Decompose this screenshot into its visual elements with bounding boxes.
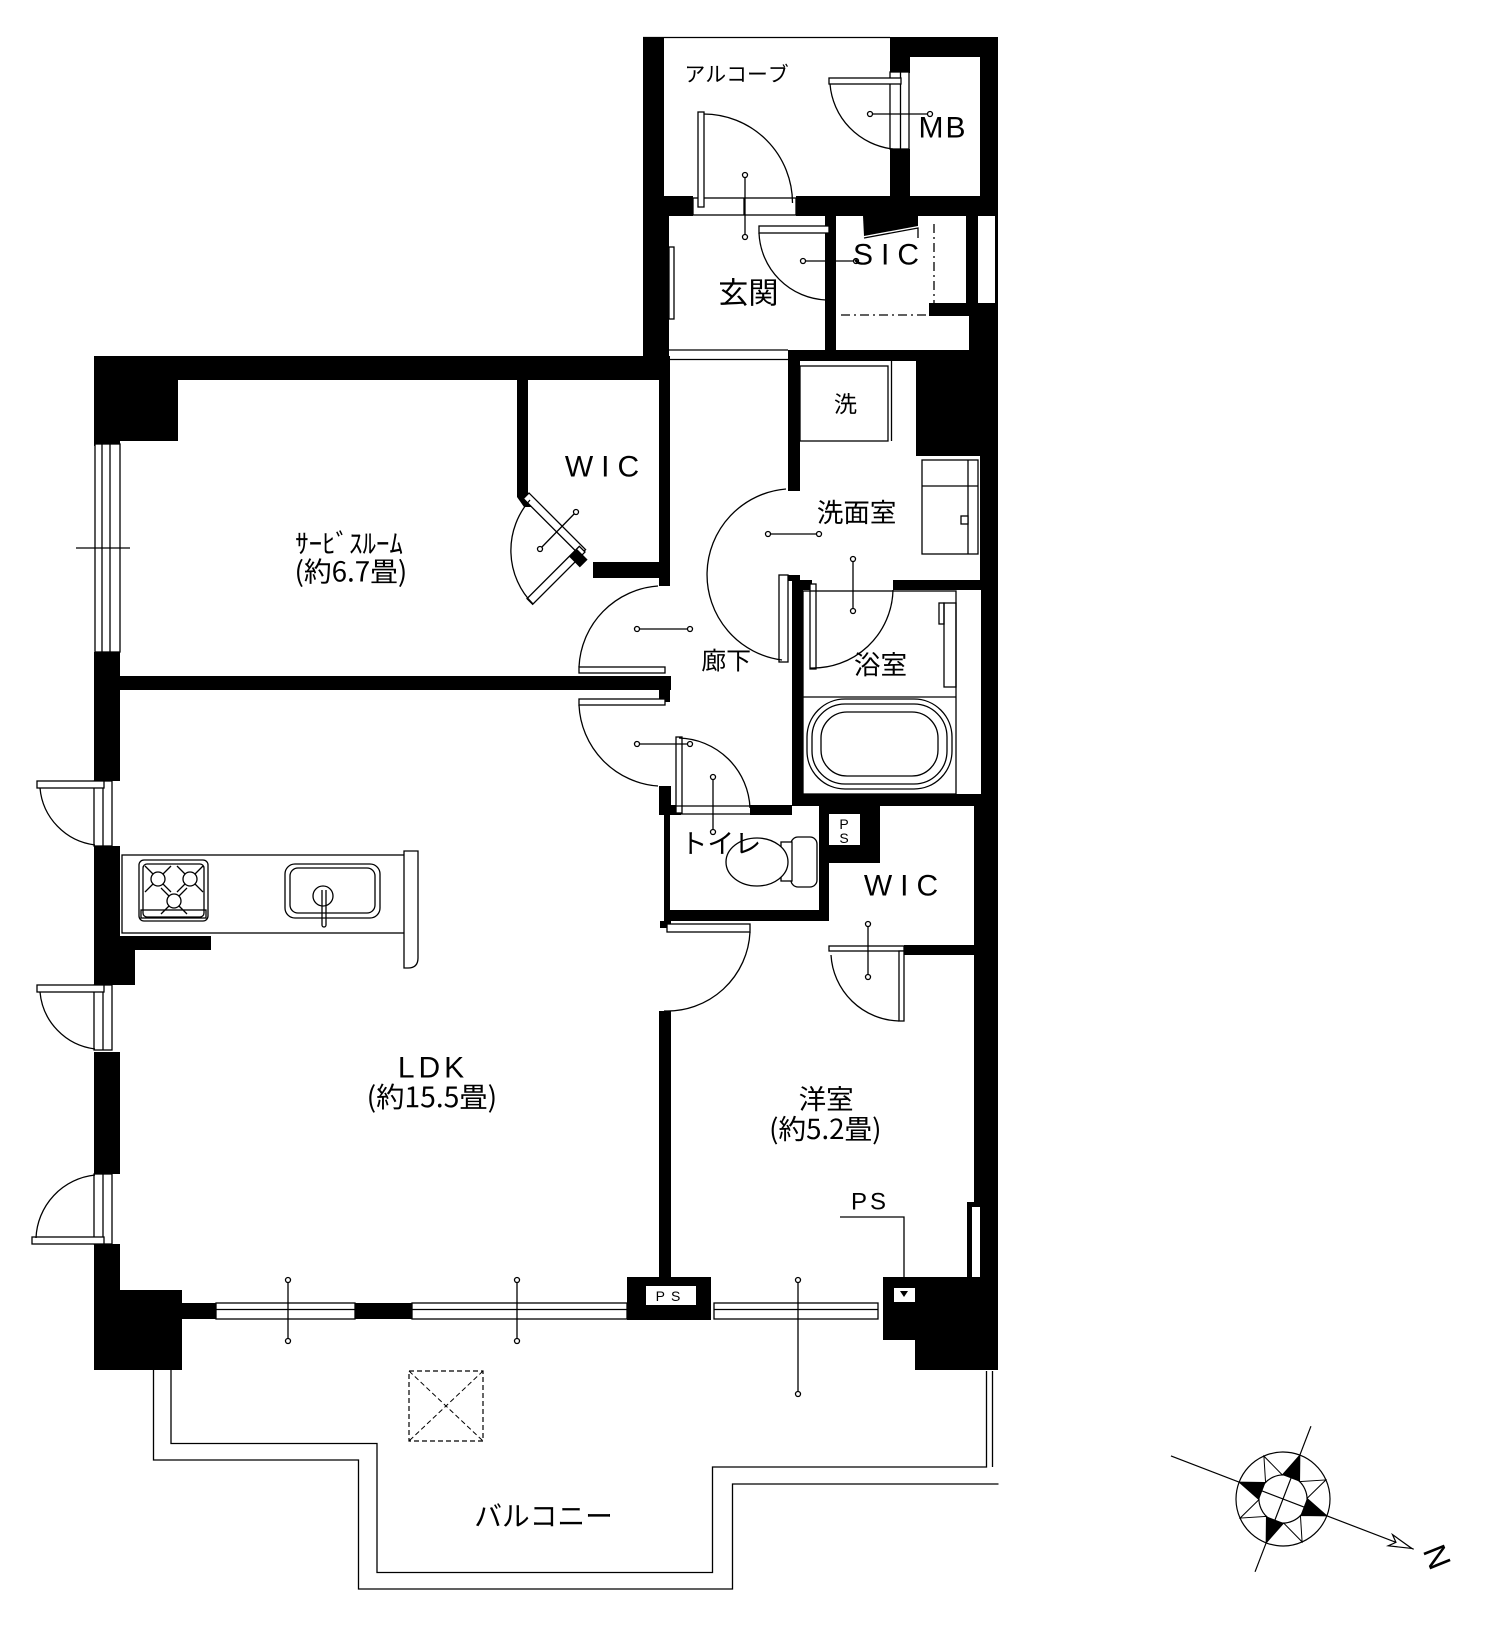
svg-text:PS: PS <box>656 1288 687 1304</box>
svg-text:MB: MB <box>919 112 968 145</box>
svg-text:WIC: WIC <box>864 870 946 903</box>
svg-text:SIC: SIC <box>853 239 927 272</box>
svg-text:PS: PS <box>851 1189 889 1216</box>
svg-text:S: S <box>839 830 848 846</box>
svg-text:LDK: LDK <box>398 1052 468 1085</box>
svg-text:WIC: WIC <box>565 451 647 484</box>
